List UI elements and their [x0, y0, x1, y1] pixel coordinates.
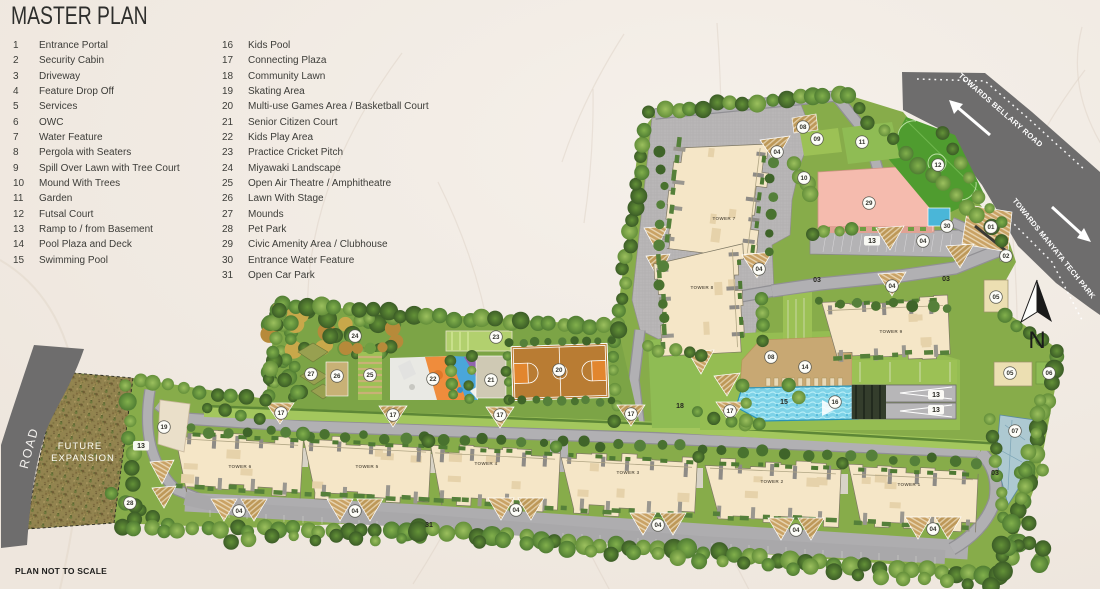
svg-text:10: 10	[801, 175, 808, 182]
svg-text:17: 17	[628, 411, 635, 418]
svg-text:26: 26	[334, 373, 341, 380]
svg-text:30: 30	[944, 223, 951, 230]
svg-text:03: 03	[991, 470, 999, 477]
svg-text:TOWER 9: TOWER 9	[880, 329, 903, 334]
svg-text:21: 21	[488, 377, 495, 384]
svg-text:27: 27	[308, 371, 315, 378]
svg-text:03: 03	[813, 277, 821, 284]
svg-text:04: 04	[920, 238, 927, 245]
svg-text:17: 17	[497, 412, 504, 419]
svg-text:06: 06	[1046, 370, 1053, 377]
svg-text:02: 02	[1003, 253, 1010, 260]
svg-text:04: 04	[889, 283, 896, 290]
svg-text:14: 14	[802, 364, 809, 371]
svg-text:17: 17	[390, 412, 397, 419]
svg-text:04: 04	[352, 508, 359, 515]
svg-text:TOWER 7: TOWER 7	[713, 216, 736, 221]
svg-text:01: 01	[988, 224, 995, 231]
svg-text:15: 15	[780, 399, 788, 406]
svg-text:29: 29	[866, 200, 873, 207]
svg-text:07: 07	[1012, 428, 1019, 435]
svg-text:24: 24	[352, 333, 359, 340]
svg-text:18: 18	[676, 403, 684, 410]
svg-text:04: 04	[774, 149, 781, 156]
svg-text:13: 13	[137, 443, 145, 450]
svg-text:TOWER 3: TOWER 3	[617, 470, 640, 475]
svg-text:13: 13	[932, 407, 940, 414]
svg-text:TOWER 6: TOWER 6	[229, 464, 252, 469]
svg-text:20: 20	[556, 367, 563, 374]
svg-text:31: 31	[425, 522, 433, 529]
svg-text:17: 17	[727, 408, 734, 415]
svg-text:04: 04	[513, 507, 520, 514]
svg-text:N: N	[1028, 327, 1045, 354]
svg-text:03: 03	[942, 276, 950, 283]
svg-text:TOWER 2: TOWER 2	[761, 479, 784, 484]
svg-text:05: 05	[993, 294, 1000, 301]
svg-text:11: 11	[859, 139, 866, 146]
svg-text:04: 04	[236, 508, 243, 515]
svg-text:TOWER 4: TOWER 4	[475, 461, 498, 466]
svg-text:05: 05	[1007, 370, 1014, 377]
svg-text:04: 04	[793, 527, 800, 534]
svg-text:28: 28	[127, 500, 134, 507]
svg-text:TOWER 8: TOWER 8	[691, 285, 714, 290]
svg-text:TOWER 5: TOWER 5	[356, 464, 379, 469]
svg-text:08: 08	[800, 124, 807, 131]
svg-text:08: 08	[768, 354, 775, 361]
svg-text:25: 25	[367, 372, 374, 379]
svg-text:09: 09	[814, 136, 821, 143]
svg-text:EXPANSION: EXPANSION	[51, 453, 115, 464]
svg-text:17: 17	[278, 410, 285, 417]
svg-text:16: 16	[832, 399, 839, 406]
svg-text:FUTURE: FUTURE	[58, 441, 103, 452]
svg-text:13: 13	[868, 238, 876, 245]
svg-text:19: 19	[161, 424, 168, 431]
svg-text:13: 13	[932, 392, 940, 399]
svg-text:22: 22	[430, 376, 437, 383]
svg-text:04: 04	[930, 526, 937, 533]
svg-text:04: 04	[655, 522, 662, 529]
svg-text:12: 12	[935, 162, 942, 169]
svg-text:04: 04	[756, 266, 763, 273]
svg-text:TOWER 1: TOWER 1	[898, 482, 921, 487]
svg-text:23: 23	[493, 334, 500, 341]
